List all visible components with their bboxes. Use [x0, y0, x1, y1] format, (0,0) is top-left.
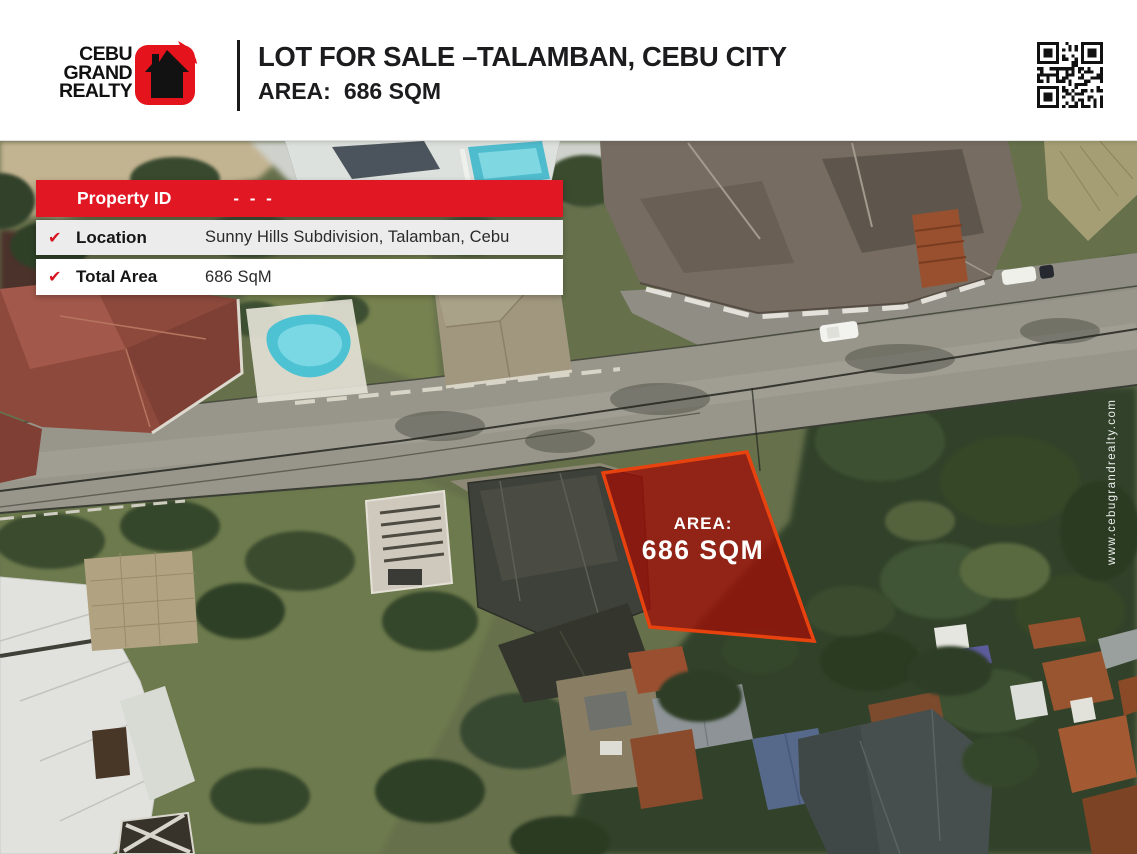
website-watermark: www.cebugrandrealty.com [1106, 399, 1118, 566]
total-area-row: ✔ Total Area 686 SqM [36, 259, 563, 295]
total-area-label: Total Area [76, 267, 205, 287]
property-info-box: Property ID - - - ✔ Location Sunny Hills… [36, 180, 563, 295]
logo-wordmark: CEBU GRAND REALTY [40, 45, 132, 101]
qr-code-icon [1035, 42, 1105, 108]
house-logo-icon [134, 40, 206, 110]
lot-area-value: 686 SQM [642, 535, 764, 565]
location-value: Sunny Hills Subdivision, Talamban, Cebu [205, 228, 509, 247]
property-id-label: Property ID [77, 188, 171, 209]
property-id-header: Property ID - - - [36, 180, 563, 217]
total-area-value: 686 SqM [205, 268, 272, 287]
flyer-area-value: 686 SQM [344, 78, 441, 105]
flyer-area-label: AREA: [258, 78, 331, 105]
x-pavilion [118, 813, 194, 854]
header-divider [237, 40, 240, 111]
skylight [92, 727, 130, 779]
paved-area [84, 551, 198, 651]
location-label: Location [76, 228, 205, 248]
satellite-map: AREA: 686 SQM www.cebugrandrealty.com Pr… [0, 141, 1137, 854]
check-icon: ✔ [48, 267, 76, 287]
property-id-value: - - - [233, 189, 274, 209]
location-row: ✔ Location Sunny Hills Subdivision, Tala… [36, 220, 563, 255]
flyer-page: CEBU GRAND REALTY LOT FOR SALE –TALAMBAN… [0, 0, 1137, 854]
lot-area-label: AREA: [674, 514, 733, 533]
logo-word-3: REALTY [40, 82, 132, 101]
logo-word-1: CEBU [40, 45, 132, 64]
header-bar: CEBU GRAND REALTY LOT FOR SALE –TALAMBAN… [0, 0, 1137, 141]
title-block: LOT FOR SALE –TALAMBAN, CEBU CITY AREA: … [258, 41, 787, 105]
flyer-title: LOT FOR SALE –TALAMBAN, CEBU CITY [258, 41, 787, 73]
striped-structure [366, 491, 452, 593]
check-icon: ✔ [48, 228, 76, 248]
brick-structure [912, 209, 968, 288]
flyer-subtitle: AREA: 686 SQM [258, 78, 787, 105]
swimming-pool [246, 299, 368, 403]
